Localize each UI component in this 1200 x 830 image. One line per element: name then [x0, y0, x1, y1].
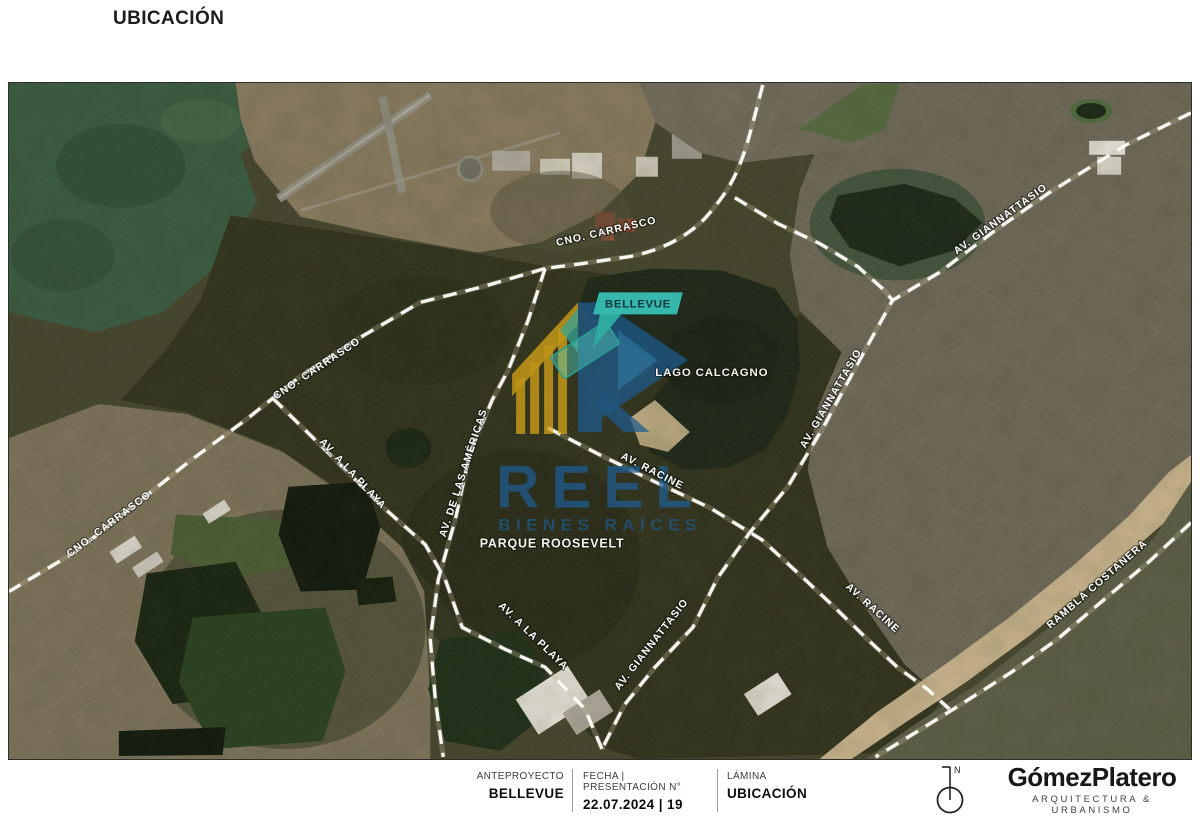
title-block-columns: ANTEPROYECTOBELLEVUEFECHA | PRESENTACIÓN… [430, 769, 836, 812]
watermark-tagline: BIENES RAÍCES [498, 516, 701, 535]
gomezplatero-logo: GómezPlatero ARQUITECTURA & URBANISMO [1004, 764, 1180, 816]
logo-tagline: ARQUITECTURA & URBANISMO [1004, 794, 1180, 816]
park-label: PARQUE ROOSEVELT [480, 537, 625, 551]
location-sheet: UBICACIÓN [0, 0, 1200, 830]
titleblock-col-2: LÁMINAUBICACIÓN [718, 769, 836, 812]
titleblock-label: ANTEPROYECTO [430, 771, 564, 782]
titleblock-value: BELLEVUE [430, 786, 564, 801]
logo-name: GómezPlatero [1004, 764, 1180, 790]
north-arrow: N [930, 762, 974, 818]
lake-label: LAGO CALCAGNO [655, 367, 768, 379]
titleblock-label: LÁMINA [727, 771, 836, 782]
titleblock-value: UBICACIÓN [727, 786, 836, 801]
titleblock-label: FECHA | PRESENTACIÓN N° [583, 771, 709, 793]
satellite-map-drawing: REEL BIENES RAÍCES CNO. CARRASCOCNO. CAR… [9, 83, 1191, 759]
title-block: ANTEPROYECTOBELLEVUEFECHA | PRESENTACIÓN… [0, 760, 1200, 830]
north-letter: N [954, 765, 961, 775]
titleblock-col-1: FECHA | PRESENTACIÓN N°22.07.2024 | 19 [573, 769, 709, 812]
satellite-map: REEL BIENES RAÍCES CNO. CARRASCOCNO. CAR… [8, 82, 1192, 760]
titleblock-value: 22.07.2024 | 19 [583, 797, 709, 812]
bellevue-badge-label: BELLEVUE [605, 298, 671, 310]
page-title: UBICACIÓN [113, 8, 224, 30]
titleblock-col-0: ANTEPROYECTOBELLEVUE [430, 769, 564, 812]
